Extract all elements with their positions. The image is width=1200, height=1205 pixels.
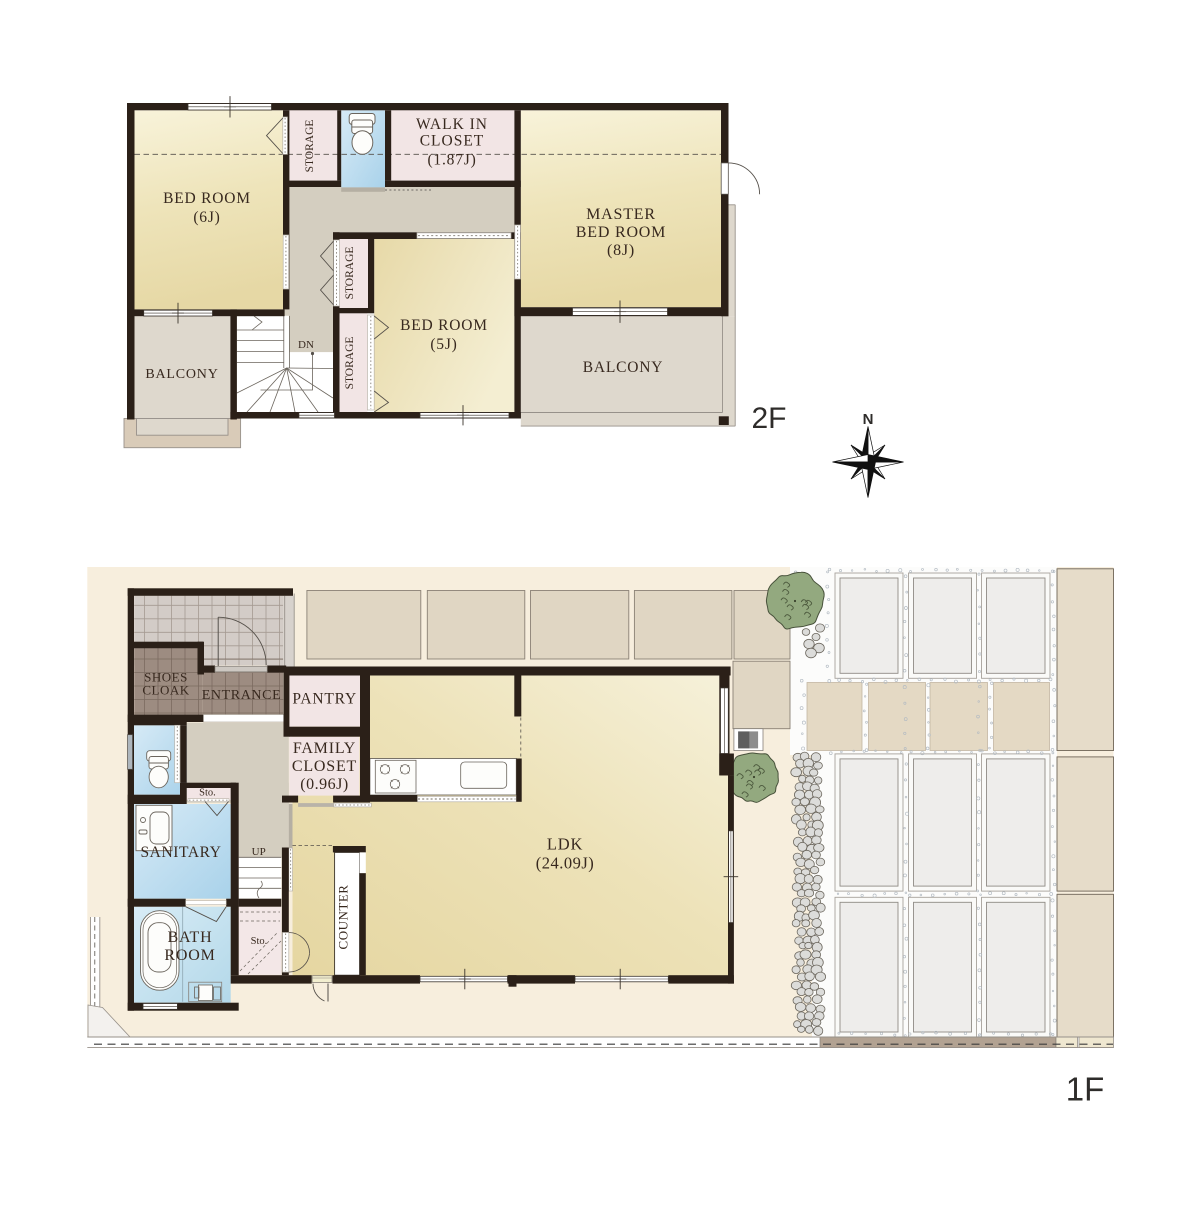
svg-text:BED ROOM: BED ROOM bbox=[400, 317, 488, 334]
svg-text:CLOSET: CLOSET bbox=[420, 133, 485, 150]
svg-text:UP: UP bbox=[252, 846, 266, 858]
svg-text:(6J): (6J) bbox=[193, 209, 220, 226]
svg-text:ENTRANCE: ENTRANCE bbox=[202, 688, 281, 703]
svg-text:(5J): (5J) bbox=[430, 336, 457, 353]
svg-text:(24.09J): (24.09J) bbox=[536, 854, 595, 873]
svg-text:(8J): (8J) bbox=[607, 242, 635, 259]
svg-text:STORAGE: STORAGE bbox=[304, 120, 316, 173]
svg-text:2F: 2F bbox=[751, 402, 786, 435]
svg-text:BATH: BATH bbox=[168, 929, 213, 946]
svg-text:BALCONY: BALCONY bbox=[145, 367, 218, 382]
svg-text:LDK: LDK bbox=[547, 835, 583, 854]
svg-text:STORAGE: STORAGE bbox=[344, 337, 356, 390]
svg-text:MASTER: MASTER bbox=[586, 206, 656, 223]
svg-text:(1.87J): (1.87J) bbox=[427, 152, 476, 169]
svg-text:FAMILY: FAMILY bbox=[293, 740, 356, 757]
svg-text:WALK IN: WALK IN bbox=[416, 116, 488, 133]
svg-text:1F: 1F bbox=[1066, 1071, 1105, 1108]
svg-text:(0.96J): (0.96J) bbox=[300, 776, 348, 793]
svg-text:COUNTER: COUNTER bbox=[336, 885, 351, 950]
svg-text:N: N bbox=[863, 411, 874, 428]
svg-text:BED ROOM: BED ROOM bbox=[163, 190, 251, 207]
svg-text:CLOAK: CLOAK bbox=[142, 683, 189, 698]
svg-text:ROOM: ROOM bbox=[164, 947, 215, 964]
svg-text:Sto.: Sto. bbox=[199, 788, 216, 799]
svg-text:BED ROOM: BED ROOM bbox=[576, 224, 666, 241]
svg-text:SANITARY: SANITARY bbox=[140, 844, 221, 861]
svg-text:Sto.: Sto. bbox=[251, 936, 268, 947]
svg-text:STORAGE: STORAGE bbox=[344, 247, 356, 300]
svg-text:BALCONY: BALCONY bbox=[583, 359, 664, 376]
svg-text:DN: DN bbox=[298, 339, 314, 351]
svg-text:CLOSET: CLOSET bbox=[292, 758, 357, 775]
svg-text:PANTRY: PANTRY bbox=[292, 691, 357, 708]
